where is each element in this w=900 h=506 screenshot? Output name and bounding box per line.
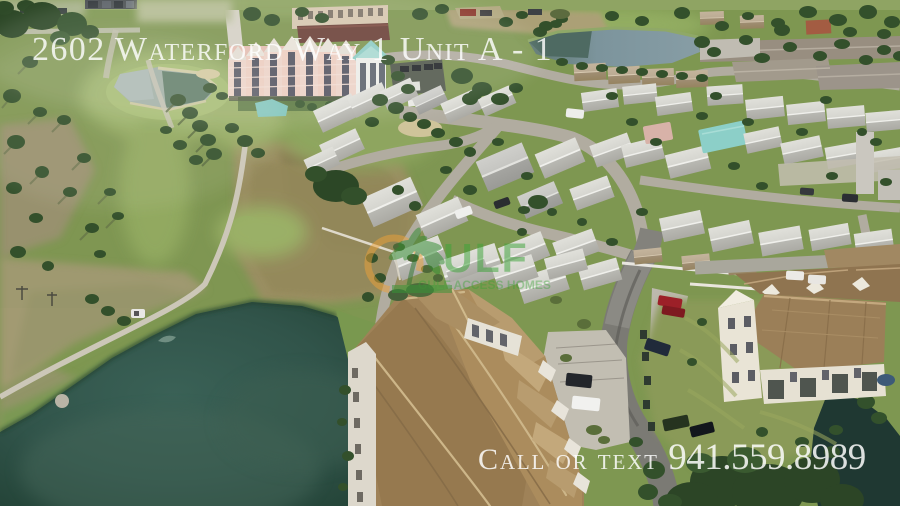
svg-text:ULF: ULF — [443, 235, 529, 281]
svg-text:GULF ACCESS HOMES: GULF ACCESS HOMES — [418, 278, 551, 292]
